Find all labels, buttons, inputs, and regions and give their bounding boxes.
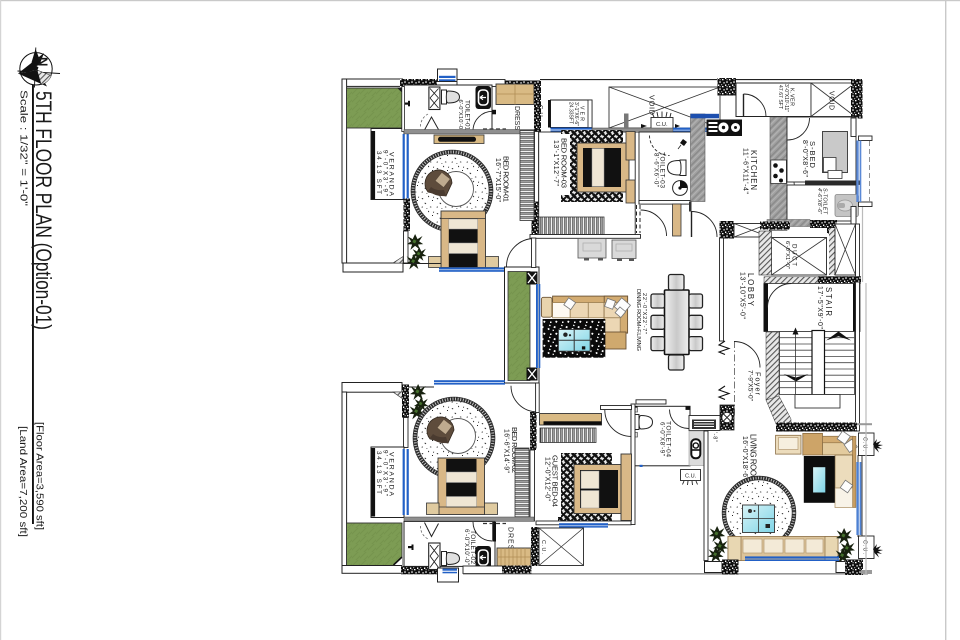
svg-text:12'-0"X12'-0": 12'-0"X12'-0"	[544, 457, 551, 502]
svg-text:BED ROOM-03: BED ROOM-03	[560, 138, 569, 188]
svg-text:17'-5"X9'-0": 17'-5"X9'-0"	[816, 286, 823, 330]
svg-text:VOID: VOID	[648, 95, 657, 115]
svg-text:34.13 SFT: 34.13 SFT	[375, 451, 382, 494]
svg-text:N: N	[36, 57, 51, 66]
svg-text:C.U.: C.U.	[685, 474, 697, 480]
svg-text:[Floor Area=3,590 sft]: [Floor Area=3,590 sft]	[34, 422, 46, 530]
svg-text:13'-10"X5'-0": 13'-10"X5'-0"	[739, 272, 746, 320]
svg-text:S-BED: S-BED	[808, 141, 817, 169]
svg-text:6'-0"X8'-9": 6'-0"X8'-9"	[659, 422, 666, 456]
svg-text:6'-0"X10'-0": 6'-0"X10'-0"	[457, 100, 463, 132]
svg-text:[Land Area=7,200 sft]: [Land Area=7,200 sft]	[17, 426, 29, 537]
svg-text:8'-0"X8'-6": 8'-0"X8'-6"	[801, 140, 808, 178]
svg-text:7'-9"X5'-0": 7'-9"X5'-0"	[747, 370, 754, 402]
svg-text:C.U.: C.U.	[656, 122, 668, 128]
svg-text:8'-6"X6'-0": 8'-6"X6'-0"	[653, 153, 660, 187]
svg-text:C.U.: C.U.	[537, 105, 543, 119]
svg-text:KITCHEN: KITCHEN	[749, 150, 758, 190]
svg-text:16'-7"X15'-0": 16'-7"X15'-0"	[494, 158, 501, 203]
svg-text:16'-0"X18'-6": 16'-0"X18'-6"	[741, 436, 748, 481]
svg-text:6'-0"X1'-0": 6'-0"X1'-0"	[784, 241, 790, 269]
svg-text:LIVING ROOM: LIVING ROOM	[749, 434, 758, 482]
svg-text:Scale : 1/32" = 1'-0": Scale : 1/32" = 1'-0"	[18, 90, 30, 206]
svg-text:BED ROOM-01: BED ROOM-01	[501, 156, 510, 202]
svg-text:Foyer: Foyer	[754, 372, 763, 396]
svg-text:4'-6"X8'-6": 4'-6"X8'-6"	[816, 188, 822, 215]
svg-text:GUEST BED-04: GUEST BED-04	[551, 455, 560, 507]
svg-text:TOILET-01: TOILET-01	[464, 100, 471, 130]
svg-text:24.33SFT: 24.33SFT	[568, 102, 574, 124]
svg-text:6'-0"X10'-0": 6'-0"X10'-0"	[463, 529, 470, 565]
svg-text:STAIR: STAIR	[824, 287, 833, 316]
svg-text:22'-0"X22'-7": 22'-0"X22'-7"	[641, 293, 647, 334]
svg-text:DRESS: DRESS	[513, 106, 520, 130]
svg-text:DINING ROOM+F.LIVING: DINING ROOM+F.LIVING	[635, 289, 641, 351]
svg-text:47.67 SFT: 47.67 SFT	[777, 85, 783, 109]
svg-text:VOID: VOID	[828, 91, 835, 110]
svg-text:16'-6"X14'-9": 16'-6"X14'-9"	[503, 429, 510, 474]
svg-text:5TH FLOOR PLAN (Option-01): 5TH FLOOR PLAN (Option-01)	[31, 91, 56, 330]
svg-text:C.U.: C.U.	[540, 540, 546, 554]
svg-text:11'-6"X11'-4": 11'-6"X11'-4"	[742, 148, 749, 195]
svg-text:34.13 SFT: 34.13 SFT	[375, 151, 382, 194]
svg-text:13'-1"X12'-7": 13'-1"X12'-7"	[552, 140, 559, 187]
